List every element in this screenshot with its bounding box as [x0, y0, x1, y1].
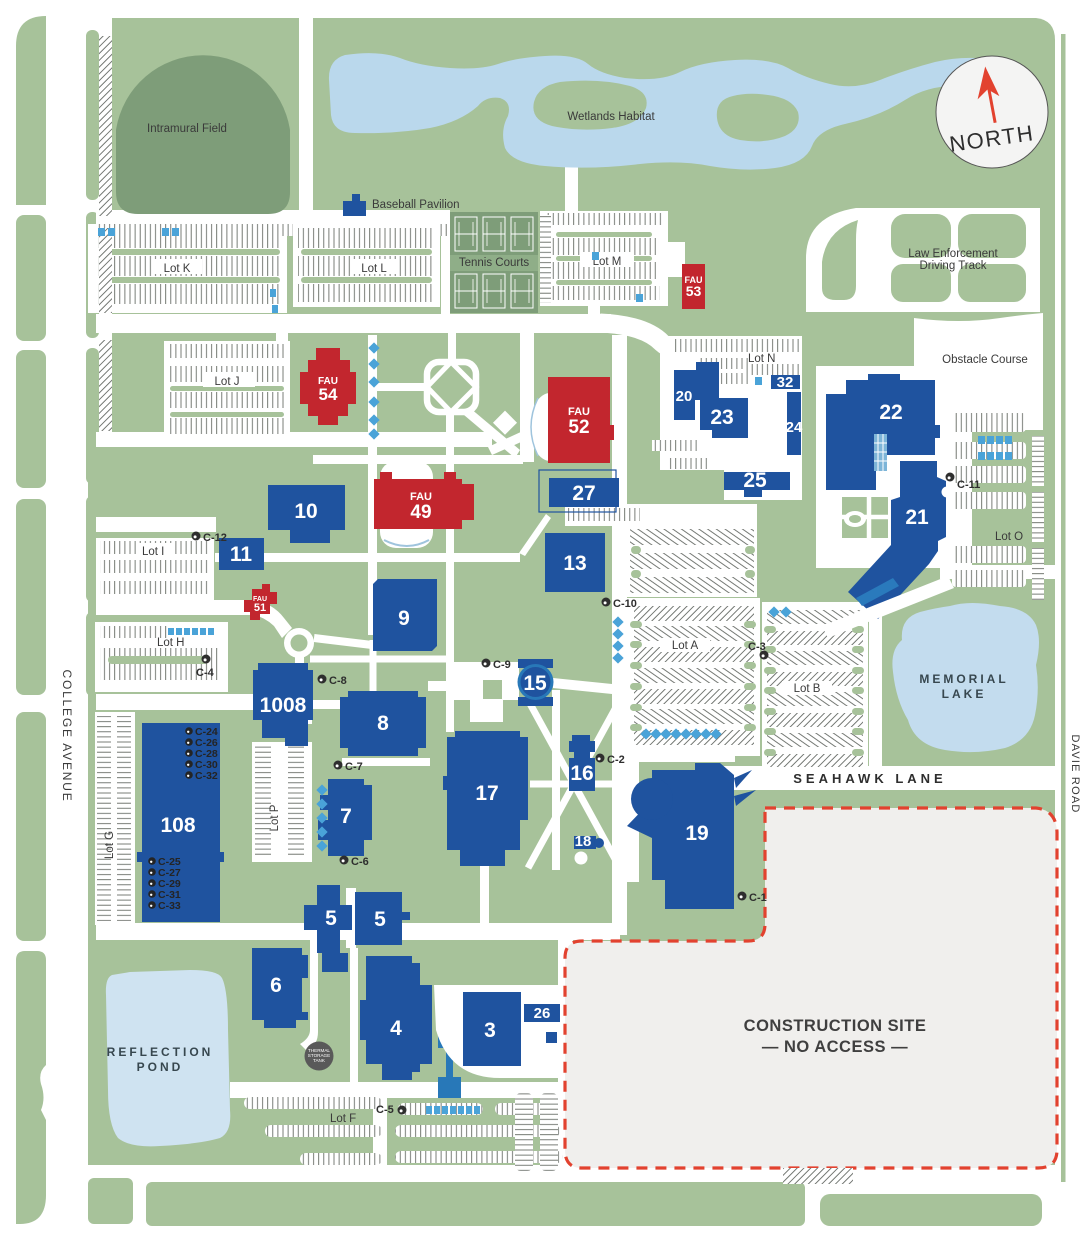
svg-text:Lot O: Lot O [995, 531, 1023, 543]
svg-text:Obstacle Course: Obstacle Course [942, 354, 1028, 366]
svg-text:Lot G: Lot G [104, 831, 116, 859]
svg-text:Lot H: Lot H [157, 637, 185, 649]
svg-text:18: 18 [575, 833, 592, 850]
svg-text:10: 10 [294, 500, 317, 523]
svg-text:Lot A: Lot A [672, 640, 699, 652]
svg-text:C-7: C-7 [345, 761, 363, 773]
svg-text:17: 17 [475, 782, 498, 805]
svg-text:5: 5 [374, 908, 386, 931]
svg-text:5: 5 [325, 907, 337, 930]
svg-text:Lot J: Lot J [215, 376, 240, 388]
svg-text:24: 24 [786, 419, 803, 436]
svg-text:3: 3 [484, 1019, 496, 1042]
svg-text:21: 21 [905, 506, 929, 529]
svg-text:C-2: C-2 [607, 754, 625, 766]
svg-text:108: 108 [160, 814, 195, 837]
svg-text:COLLEGE AVENUE: COLLEGE AVENUE [60, 669, 74, 802]
svg-text:LAKE: LAKE [942, 687, 987, 701]
svg-text:9: 9 [398, 607, 410, 630]
svg-text:MEMORIAL: MEMORIAL [919, 672, 1008, 686]
svg-text:C-6: C-6 [351, 856, 369, 868]
svg-text:Lot P: Lot P [269, 804, 281, 831]
svg-text:Lot B: Lot B [794, 683, 821, 695]
svg-text:32: 32 [777, 374, 794, 391]
svg-text:54: 54 [319, 385, 338, 404]
svg-text:7: 7 [340, 805, 352, 828]
svg-text:SEAHAWK LANE: SEAHAWK LANE [793, 771, 946, 786]
svg-text:Baseball Pavilion: Baseball Pavilion [372, 199, 460, 211]
svg-text:C-9: C-9 [493, 659, 511, 671]
svg-text:C-1: C-1 [749, 892, 767, 904]
svg-text:Wetlands Habitat: Wetlands Habitat [567, 111, 655, 123]
svg-text:4: 4 [390, 1017, 402, 1040]
svg-text:16: 16 [570, 762, 593, 785]
svg-text:6: 6 [270, 974, 282, 997]
svg-text:Lot I: Lot I [142, 546, 164, 558]
svg-text:11: 11 [230, 543, 253, 566]
svg-text:C-10: C-10 [613, 598, 637, 610]
svg-text:15: 15 [523, 672, 547, 695]
svg-text:52: 52 [568, 417, 589, 438]
svg-text:25: 25 [743, 469, 767, 492]
svg-text:51: 51 [254, 602, 266, 614]
svg-text:C-33: C-33 [158, 900, 181, 912]
svg-text:C-11: C-11 [957, 479, 980, 491]
svg-text:— NO ACCESS —: — NO ACCESS — [762, 1038, 908, 1056]
svg-text:C-8: C-8 [329, 675, 347, 687]
svg-text:Lot L: Lot L [361, 263, 387, 275]
svg-text:19: 19 [685, 822, 708, 845]
svg-text:Lot K: Lot K [164, 263, 191, 275]
svg-text:REFLECTION: REFLECTION [107, 1045, 214, 1059]
svg-text:TANK: TANK [313, 1058, 326, 1063]
svg-text:Intramural Field: Intramural Field [147, 123, 227, 135]
svg-text:20: 20 [676, 388, 693, 405]
svg-text:23: 23 [710, 406, 733, 429]
svg-text:Lot N: Lot N [748, 353, 776, 365]
svg-text:C-32: C-32 [195, 770, 218, 782]
svg-text:27: 27 [572, 482, 595, 505]
svg-text:Law Enforcement: Law Enforcement [908, 248, 998, 260]
svg-text:8: 8 [377, 712, 389, 735]
svg-text:DAVIE ROAD: DAVIE ROAD [1069, 734, 1080, 813]
svg-text:Driving Track: Driving Track [919, 260, 986, 272]
svg-text:22: 22 [879, 401, 902, 424]
svg-text:POND: POND [137, 1060, 184, 1074]
svg-text:26: 26 [534, 1005, 551, 1022]
svg-text:Tennis Courts: Tennis Courts [459, 257, 530, 269]
svg-text:C-4: C-4 [196, 667, 215, 679]
svg-text:53: 53 [686, 283, 702, 299]
svg-text:49: 49 [410, 502, 431, 523]
svg-text:C-12: C-12 [203, 532, 227, 544]
svg-text:Lot F: Lot F [330, 1113, 356, 1125]
svg-text:C-5: C-5 [376, 1104, 394, 1116]
svg-text:1008: 1008 [260, 694, 307, 717]
svg-text:13: 13 [563, 552, 586, 575]
svg-text:CONSTRUCTION SITE: CONSTRUCTION SITE [744, 1017, 927, 1035]
